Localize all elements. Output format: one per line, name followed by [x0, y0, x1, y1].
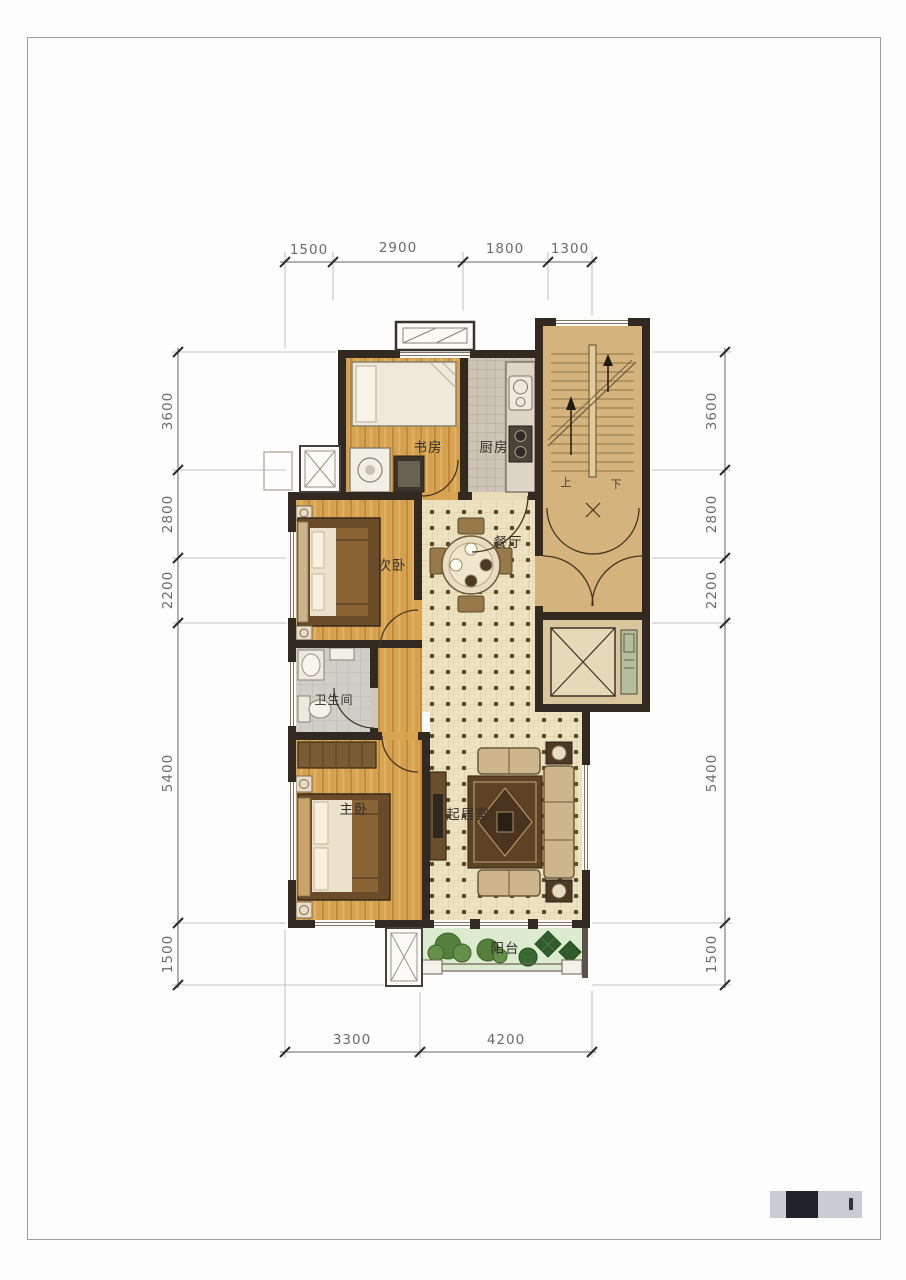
dimensions-left: 3600 2800 2200 5400 1500 — [160, 392, 176, 973]
entry-door-threshold — [535, 556, 543, 606]
elevator-equipment — [621, 630, 637, 694]
kitchen-sink — [509, 376, 532, 410]
sofa — [544, 766, 574, 878]
dim-value: 5400 — [704, 754, 720, 792]
dim-value: 2200 — [704, 571, 720, 609]
bathroom-label: 卫生间 — [314, 693, 353, 707]
stair-window — [556, 318, 628, 326]
planter — [519, 948, 537, 966]
dim-value: 4200 — [487, 1032, 525, 1048]
dim-value: 1500 — [290, 242, 328, 258]
dining-label: 餐厅 — [494, 535, 523, 551]
study-label: 书房 — [414, 440, 443, 456]
master-door-threshold — [382, 732, 418, 740]
bathroom-cabinet — [330, 648, 354, 660]
floor-plan-page: 书房 厨房 次卧 餐厅 卫生间 主卧 起居室 阳台 上 下 — [0, 0, 906, 1280]
stairs-down-label: 下 — [611, 478, 622, 491]
scrollbar-thumb[interactable] — [786, 1191, 818, 1218]
dim-value: 1800 — [486, 241, 524, 257]
dim-value: 1500 — [704, 935, 720, 973]
dining-chair — [458, 518, 484, 534]
dimensions-bottom: 3300 4200 — [333, 1032, 525, 1048]
lamp — [552, 746, 566, 760]
elevator — [551, 628, 637, 696]
dim-value: 3600 — [160, 392, 176, 430]
dim-value: 2900 — [379, 240, 417, 256]
study-bed-pillow — [356, 366, 376, 422]
nightstand — [296, 626, 312, 640]
kitchen-label: 厨房 — [480, 440, 509, 456]
dim-value: 3300 — [333, 1032, 371, 1048]
dimensions-top: 1500 2900 1800 1300 — [290, 240, 589, 258]
nightstand — [296, 776, 312, 792]
balcony-rail-post — [562, 960, 582, 974]
coffee-table — [497, 812, 513, 832]
master-bedroom-furniture — [296, 742, 390, 918]
second-bedroom-furniture — [296, 506, 380, 640]
nightstand — [296, 902, 312, 918]
kitchen-furniture — [506, 362, 535, 492]
dim-value: 1300 — [551, 241, 589, 257]
stair-stringer — [589, 345, 596, 477]
bedroom2-window — [288, 532, 296, 618]
second-bedroom-label: 次卧 — [378, 558, 407, 574]
balcony-rail-post — [422, 960, 442, 974]
stairs-up-label: 上 — [561, 476, 572, 489]
kitchen-door-threshold — [472, 492, 528, 500]
bath-door-threshold — [370, 688, 378, 728]
cursor-mark — [849, 1198, 853, 1210]
floor-plan-drawing: 书房 厨房 次卧 餐厅 卫生间 主卧 起居室 阳台 上 下 — [0, 0, 906, 1280]
dim-value: 3600 — [704, 392, 720, 430]
dimensions-right: 3600 2800 2200 5400 1500 — [704, 392, 720, 973]
dim-value: 2800 — [160, 495, 176, 533]
living-room-label: 起居室 — [446, 806, 490, 823]
dining-chair — [458, 596, 484, 612]
master-bedroom-label: 主卧 — [340, 802, 369, 818]
bedroom2-door-threshold — [414, 600, 422, 640]
ac-ledge — [264, 452, 292, 490]
dim-value: 2800 — [704, 495, 720, 533]
master-window — [288, 782, 296, 880]
hallway-floor — [378, 648, 422, 732]
balcony-sliding-door — [434, 920, 572, 928]
master-south-window — [315, 920, 375, 928]
dim-value: 1500 — [160, 935, 176, 973]
tv — [433, 794, 443, 838]
dim-value: 2200 — [160, 571, 176, 609]
toilet-tank — [298, 696, 310, 722]
living-window — [582, 765, 590, 870]
lamp — [552, 884, 566, 898]
bay-window — [396, 322, 474, 350]
bathroom-window — [288, 662, 296, 726]
balcony-label: 阳台 — [491, 941, 520, 957]
dim-value: 5400 — [160, 754, 176, 792]
